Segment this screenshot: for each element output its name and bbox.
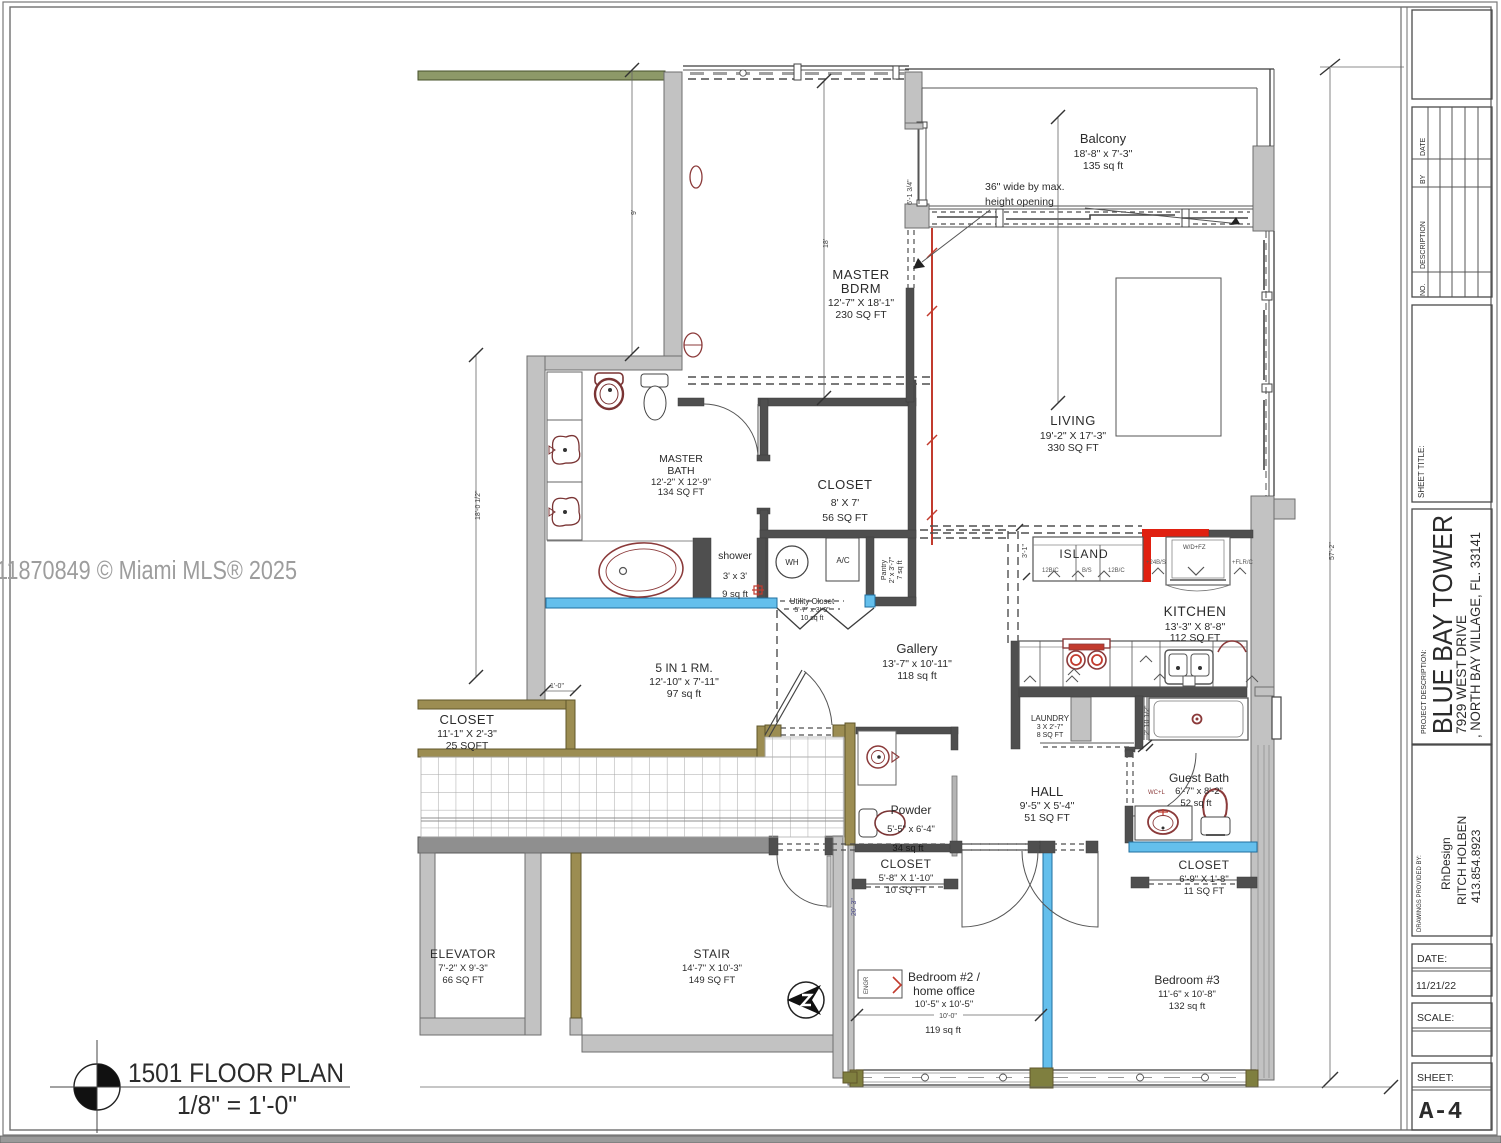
- svg-text:Gallery: Gallery: [896, 641, 938, 656]
- svg-text:6'-9" X 1'-8": 6'-9" X 1'-8": [1179, 874, 1228, 885]
- svg-text:BATH: BATH: [667, 465, 694, 477]
- svg-text:57'-2": 57'-2": [1329, 542, 1336, 560]
- svg-text:149 SQ FT: 149 SQ FT: [689, 975, 736, 986]
- svg-text:BDRM: BDRM: [841, 281, 881, 296]
- svg-text:6'-7" x 8'-2": 6'-7" x 8'-2": [1175, 786, 1223, 797]
- svg-text:DATE:: DATE:: [1417, 953, 1447, 965]
- svg-text:13'-7" x 10'-11": 13'-7" x 10'-11": [882, 658, 952, 670]
- svg-text:KITCHEN: KITCHEN: [1164, 604, 1227, 619]
- svg-text:18'-8" x 7'-3": 18'-8" x 7'-3": [1074, 148, 1133, 160]
- svg-text:52 sq ft: 52 sq ft: [1180, 798, 1212, 809]
- svg-text:5 IN 1 RM.: 5 IN 1 RM.: [655, 661, 712, 675]
- svg-text:+FLR/C: +FLR/C: [1232, 560, 1254, 566]
- svg-text:STAIR: STAIR: [694, 947, 731, 961]
- svg-text:WC+L: WC+L: [1148, 790, 1166, 796]
- svg-text:+24B/S: +24B/S: [1146, 560, 1166, 566]
- svg-text:413.854.8923: 413.854.8923: [1469, 829, 1483, 903]
- svg-text:7 sq ft: 7 sq ft: [897, 560, 904, 579]
- svg-text:5'-7" x 3'-0": 5'-7" x 3'-0": [794, 607, 830, 614]
- svg-text:2'-10 1/2": 2'-10 1/2": [1144, 705, 1151, 735]
- svg-text:3' x 3': 3' x 3': [723, 571, 747, 582]
- svg-text:RITCH HOLBEN: RITCH HOLBEN: [1455, 816, 1469, 905]
- svg-text:25 SQFT: 25 SQFT: [446, 740, 489, 752]
- svg-text:36" wide by max.: 36" wide by max.: [985, 181, 1065, 193]
- svg-text:134 SQ FT: 134 SQ FT: [658, 487, 705, 498]
- svg-text:MASTER: MASTER: [832, 267, 889, 282]
- svg-text:home office: home office: [913, 984, 975, 998]
- svg-text:10 sq ft: 10 sq ft: [801, 615, 824, 622]
- svg-text:DRAWINGS PROVIDED BY:: DRAWINGS PROVIDED BY:: [1417, 855, 1423, 932]
- svg-text:11 SQ FT: 11 SQ FT: [1184, 886, 1225, 897]
- svg-text:height opening: height opening: [985, 196, 1054, 208]
- svg-text:132 sq ft: 132 sq ft: [1169, 1001, 1206, 1012]
- svg-text:11'-1" X 2'-3": 11'-1" X 2'-3": [437, 728, 497, 740]
- svg-text:WH: WH: [785, 558, 799, 567]
- svg-text:12'-10" x 7'-11": 12'-10" x 7'-11": [649, 676, 719, 688]
- svg-text:119 sq ft: 119 sq ft: [925, 1025, 961, 1036]
- svg-text:ISLAND: ISLAND: [1059, 547, 1108, 561]
- svg-text:66 SQ FT: 66 SQ FT: [442, 975, 483, 986]
- svg-text:5'-5" x 6'-4": 5'-5" x 6'-4": [887, 824, 935, 835]
- svg-text:1501 FLOOR PLAN: 1501 FLOOR PLAN: [128, 1058, 344, 1088]
- svg-text:18': 18': [823, 239, 830, 248]
- svg-text:ENGR: ENGR: [864, 976, 870, 994]
- svg-text:18'-0 1/2": 18'-0 1/2": [475, 490, 482, 520]
- svg-text:BY: BY: [1420, 174, 1427, 184]
- svg-text:LAUNDRY: LAUNDRY: [1031, 714, 1070, 723]
- svg-text:NO.: NO.: [1420, 284, 1427, 297]
- svg-text:7'-2" X 9'-3": 7'-2" X 9'-3": [438, 963, 487, 974]
- svg-text:8 SQ FT: 8 SQ FT: [1037, 732, 1064, 739]
- svg-text:SHEET TITLE:: SHEET TITLE:: [1417, 445, 1426, 498]
- svg-text:10'-0": 10'-0": [939, 1013, 957, 1020]
- svg-text:9'-5" X 5'-4": 9'-5" X 5'-4": [1020, 800, 1075, 812]
- svg-text:1/8" = 1'-0": 1/8" = 1'-0": [177, 1090, 297, 1120]
- svg-text:A/C: A/C: [836, 556, 850, 565]
- svg-text:51 SQ FT: 51 SQ FT: [1024, 812, 1070, 824]
- svg-text:1'-0": 1'-0": [550, 683, 564, 690]
- svg-text:330 SQ FT: 330 SQ FT: [1047, 442, 1099, 454]
- svg-text:Powder: Powder: [891, 803, 932, 817]
- svg-text:11/21/22: 11/21/22: [1416, 980, 1456, 992]
- svg-text:LIVING: LIVING: [1050, 413, 1096, 428]
- svg-text:ELEVATOR: ELEVATOR: [430, 947, 496, 961]
- svg-text:118 sq ft: 118 sq ft: [897, 670, 937, 682]
- svg-text:DATE: DATE: [1420, 138, 1427, 156]
- svg-text:12'-7" X 18'-1": 12'-7" X 18'-1": [828, 297, 895, 309]
- svg-text:112 SQ FT: 112 SQ FT: [1170, 632, 1221, 644]
- svg-text:Bedroom #2 /: Bedroom #2 /: [908, 970, 981, 984]
- svg-text:12B/C: 12B/C: [1042, 568, 1059, 574]
- svg-text:3'-1": 3'-1": [1022, 544, 1029, 558]
- svg-text:97 sq ft: 97 sq ft: [667, 688, 702, 700]
- svg-text:CLOSET: CLOSET: [439, 712, 494, 727]
- svg-text:11'-6" x 10'-8": 11'-6" x 10'-8": [1158, 989, 1216, 1000]
- svg-text:Bedroom #3: Bedroom #3: [1154, 973, 1220, 987]
- svg-text:34 sq ft: 34 sq ft: [892, 843, 924, 854]
- svg-text:DESCRIPTION: DESCRIPTION: [1420, 221, 1427, 269]
- svg-text:6'-1 3/4": 6'-1 3/4": [907, 179, 914, 205]
- svg-text:shower: shower: [718, 550, 752, 562]
- svg-text:10 SQ FT: 10 SQ FT: [885, 885, 926, 896]
- svg-text:HALL: HALL: [1031, 784, 1064, 799]
- svg-text:20'-3": 20'-3": [851, 898, 858, 916]
- svg-text:CLOSET: CLOSET: [1178, 858, 1229, 872]
- svg-text:CLOSET: CLOSET: [817, 477, 872, 492]
- svg-text:3 X 2'-7": 3 X 2'-7": [1037, 724, 1064, 731]
- svg-text:Guest Bath: Guest Bath: [1169, 771, 1229, 785]
- svg-text:CLOSET: CLOSET: [880, 857, 931, 871]
- svg-text:2' x 3'-7": 2' x 3'-7": [889, 556, 896, 583]
- svg-text:9': 9': [631, 210, 638, 215]
- svg-text:SCALE:: SCALE:: [1417, 1012, 1454, 1024]
- svg-text:11870849 © Miami MLS® 2025: 11870849 © Miami MLS® 2025: [0, 557, 297, 585]
- svg-text:14'-7" X 10'-3": 14'-7" X 10'-3": [682, 963, 742, 974]
- svg-text:10'-5" x 10'-5": 10'-5" x 10'-5": [915, 999, 973, 1010]
- svg-text:8' X 7': 8' X 7': [831, 497, 860, 509]
- svg-text:19'-2" X 17'-3": 19'-2" X 17'-3": [1040, 430, 1107, 442]
- svg-text:56 SQ FT: 56 SQ FT: [822, 512, 868, 524]
- svg-text:12B/C: 12B/C: [1108, 568, 1125, 574]
- svg-text:B/S: B/S: [1082, 568, 1092, 574]
- svg-text:SHEET:: SHEET:: [1417, 1072, 1454, 1084]
- svg-text:A-4: A-4: [1419, 1099, 1462, 1126]
- svg-text:W/D+FZ: W/D+FZ: [1183, 545, 1206, 551]
- svg-text:5'-8" X 1'-10": 5'-8" X 1'-10": [879, 873, 934, 884]
- svg-text:Pantry: Pantry: [881, 559, 888, 580]
- svg-text:135 sq ft: 135 sq ft: [1083, 160, 1123, 172]
- svg-text:, NORTH BAY VILLAGE, FL. 33141: , NORTH BAY VILLAGE, FL. 33141: [1467, 532, 1483, 738]
- svg-text:MASTER: MASTER: [659, 453, 703, 465]
- svg-text:230 SQ FT: 230 SQ FT: [835, 309, 887, 321]
- svg-text:Balcony: Balcony: [1080, 131, 1127, 146]
- svg-text:RhDesign: RhDesign: [1439, 837, 1453, 890]
- svg-text:9 sq ft: 9 sq ft: [722, 589, 748, 600]
